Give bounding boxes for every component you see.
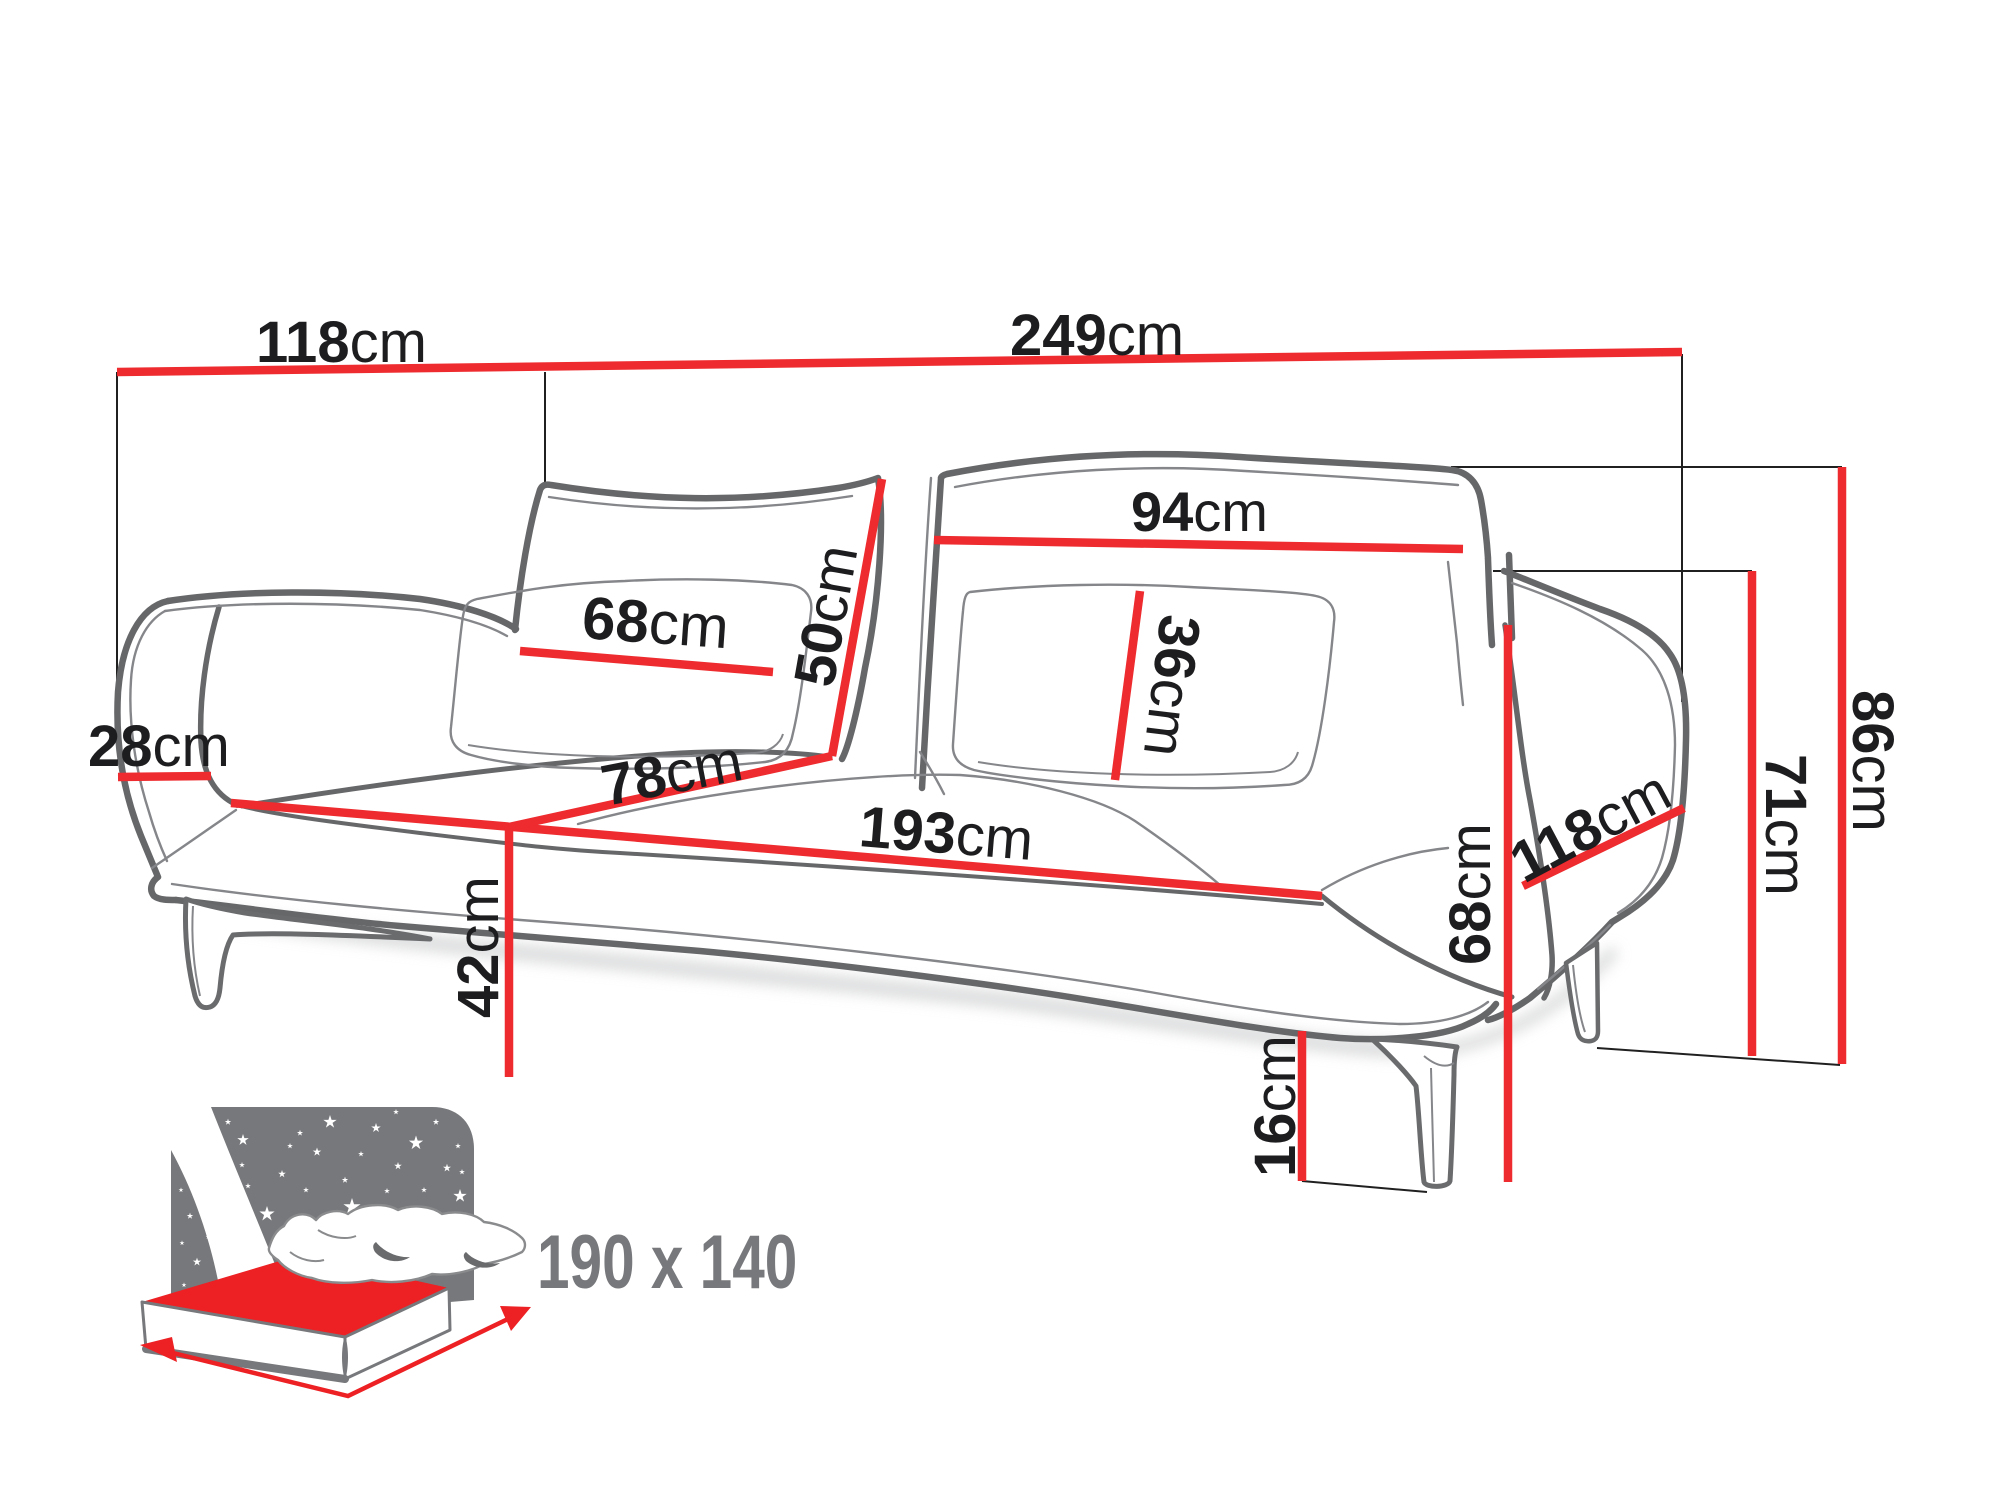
svg-text:190 x 140: 190 x 140 [537, 1221, 797, 1305]
svg-text:68cm: 68cm [580, 584, 731, 661]
svg-text:71cm: 71cm [1753, 754, 1818, 896]
svg-text:94cm: 94cm [1131, 480, 1268, 543]
svg-text:249cm: 249cm [1010, 303, 1184, 368]
svg-text:68cm: 68cm [1438, 823, 1503, 965]
svg-text:193cm: 193cm [857, 794, 1036, 873]
svg-text:28cm: 28cm [88, 714, 230, 779]
svg-text:42cm: 42cm [446, 876, 511, 1018]
svg-text:86cm: 86cm [1840, 690, 1905, 832]
svg-text:16cm: 16cm [1243, 1035, 1308, 1177]
svg-text:118cm: 118cm [256, 310, 427, 375]
